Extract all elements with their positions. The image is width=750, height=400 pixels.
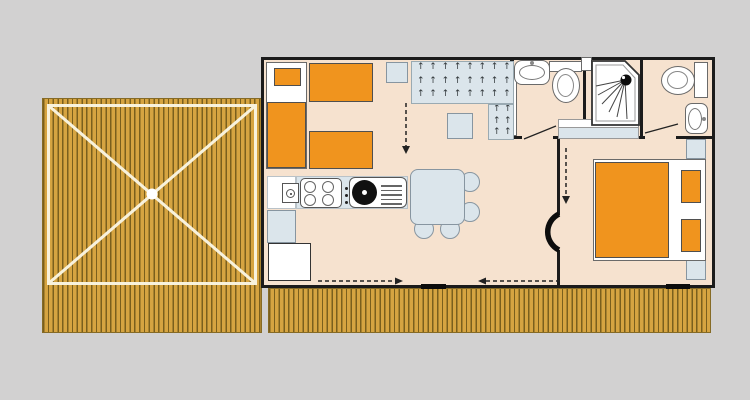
texture-glyph: ↑	[417, 90, 425, 99]
dining-table	[410, 169, 465, 225]
low-cabinet	[267, 210, 296, 243]
scene-title: Mobile home floor plan with covered wood…	[0, 0, 1, 1]
terrace-deck	[42, 98, 262, 333]
fridge	[268, 243, 311, 281]
terrace-canopy-frame	[47, 104, 257, 285]
drainer-line	[381, 203, 402, 205]
nightstand-bedroom1	[386, 62, 408, 83]
nightstand-bedroom2-bottom	[686, 259, 706, 280]
texture-glyph: ↑	[504, 128, 512, 137]
toilet-bowl-bathroom	[552, 68, 580, 103]
toilet-cistern-wc	[694, 62, 708, 98]
texture-glyph: ↑	[503, 90, 511, 99]
top-wall-window	[581, 57, 592, 71]
texture-glyph: ↑	[442, 90, 450, 99]
double-bed-mattress	[595, 162, 669, 258]
hob-knob	[345, 194, 348, 197]
texture-glyph: ↑	[493, 128, 501, 137]
texture-glyph: ↑	[503, 77, 511, 86]
texture-glyph: ↑	[429, 77, 437, 86]
texture-glyph: ↑	[491, 77, 499, 86]
washbasin-bathroom	[514, 60, 550, 85]
texture-glyph: ↑	[491, 90, 499, 99]
nightstand-bedroom2-top	[686, 139, 706, 159]
texture-glyph: ↑	[503, 63, 511, 72]
round-sink	[352, 180, 377, 205]
wall-bedroom2-upper	[557, 137, 560, 215]
drainer-line	[381, 185, 402, 187]
wardrobe-textured-area-column: ↑↑↑↑↑↑	[488, 104, 514, 140]
wardrobe-textured-area-main: ↑↑↑↑↑↑↑↑↑↑↑↑↑↑↑↑↑↑↑↑↑↑↑↑	[411, 61, 514, 104]
washbasin-faucet	[530, 61, 534, 65]
washbasin-wc	[685, 103, 708, 134]
texture-glyph: ↑	[504, 117, 512, 126]
sink-drain-dot	[362, 190, 367, 195]
burner	[322, 181, 334, 193]
washbasin-bowl	[519, 65, 545, 80]
texture-glyph: ↑	[466, 90, 474, 99]
drainer-line	[381, 190, 402, 192]
texture-glyph: ↑	[429, 90, 437, 99]
kitchen-sink-unit	[349, 177, 407, 208]
drainer-line	[381, 199, 402, 201]
front-boardwalk	[268, 288, 711, 333]
texture-glyph: ↑	[479, 77, 487, 86]
texture-glyph: ↑	[466, 63, 474, 72]
hob-4-burners	[300, 178, 342, 208]
texture-glyph: ↑	[504, 105, 512, 114]
texture-glyph: ↑	[417, 77, 425, 86]
texture-glyph: ↑	[466, 77, 474, 86]
texture-glyph: ↑	[491, 63, 499, 72]
texture-glyph: ↑	[417, 63, 425, 72]
toilet-seat-wc	[667, 71, 688, 89]
single-bed-2	[309, 63, 373, 102]
texture-glyph: ↑	[479, 90, 487, 99]
toilet-seat	[557, 74, 574, 97]
hob-knob	[345, 201, 348, 204]
burner	[304, 194, 316, 206]
texture-glyph: ↑	[429, 63, 437, 72]
burner	[322, 194, 334, 206]
hob-knob	[345, 187, 348, 190]
drainer-line	[381, 194, 402, 196]
texture-glyph: ↑	[442, 63, 450, 72]
entry-door-threshold	[421, 284, 446, 289]
bedroom2-door-threshold	[666, 284, 690, 289]
texture-glyph: ↑	[454, 63, 462, 72]
wall-bedroom2-lower	[557, 250, 560, 286]
texture-glyph: ↑	[493, 105, 501, 114]
texture-glyph: ↑	[479, 63, 487, 72]
shelf-blue	[558, 127, 639, 139]
toilet-bowl-wc	[661, 66, 695, 95]
texture-glyph: ↑	[493, 117, 501, 126]
texture-glyph: ↑	[454, 90, 462, 99]
washbasin-wc-faucet	[702, 117, 706, 121]
floorplan-scene: Mobile home floor plan with covered wood…	[0, 0, 750, 400]
single-bed-mattress	[267, 102, 306, 168]
burner	[304, 181, 316, 193]
texture-glyph: ↑	[454, 77, 462, 86]
double-bed-pillow-1	[681, 170, 701, 203]
single-bed-pillow	[274, 68, 301, 86]
floorplan-body: ↑↑↑↑↑↑↑↑↑↑↑↑↑↑↑↑↑↑↑↑↑↑↑↑ ↑↑↑↑↑↑	[261, 57, 715, 288]
water-heater-dot	[290, 193, 293, 196]
washbasin-wc-bowl	[688, 108, 702, 130]
texture-glyph: ↑	[442, 77, 450, 86]
stool-table	[447, 113, 473, 139]
single-bed-3	[309, 131, 373, 169]
wall-shower-wc	[640, 60, 643, 138]
water-heater	[282, 183, 299, 203]
double-bed-pillow-2	[681, 219, 701, 252]
